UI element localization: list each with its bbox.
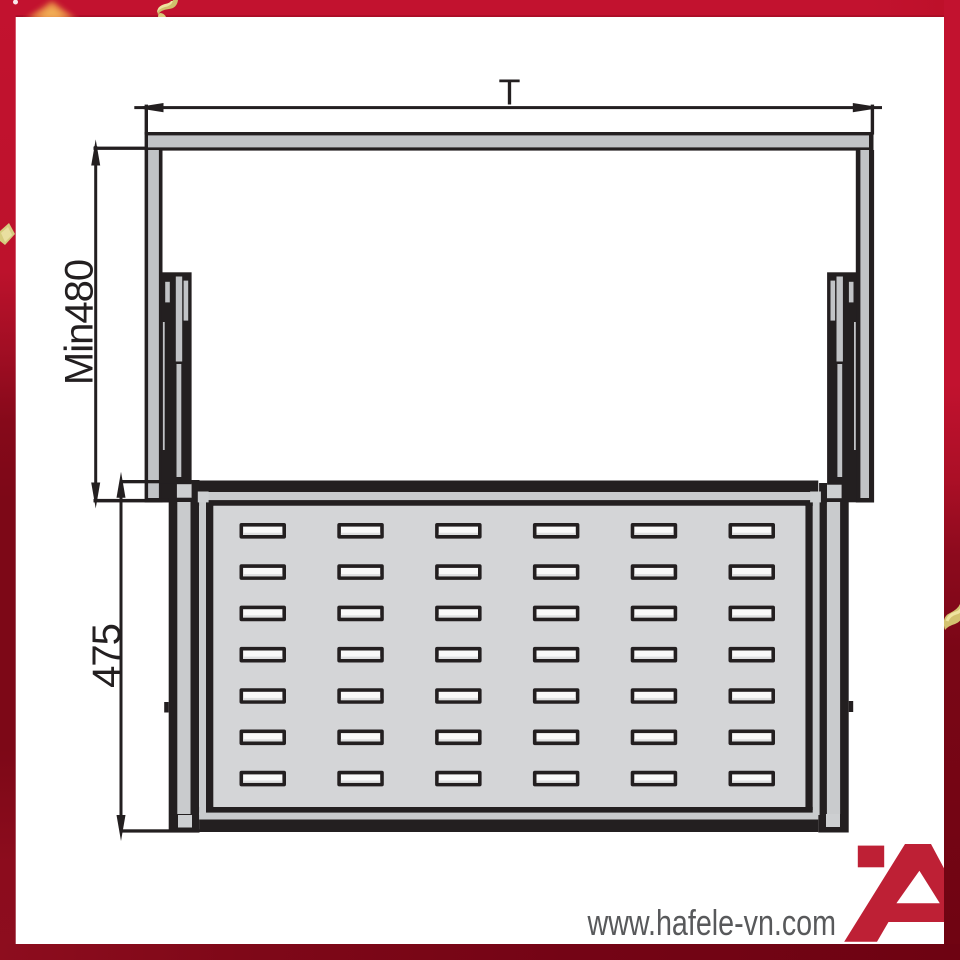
svg-text:www.hafele-vn.com: www.hafele-vn.com <box>587 902 836 943</box>
svg-text:475: 475 <box>85 624 129 688</box>
svg-text:Min480: Min480 <box>58 260 102 385</box>
svg-text:T: T <box>499 72 521 113</box>
